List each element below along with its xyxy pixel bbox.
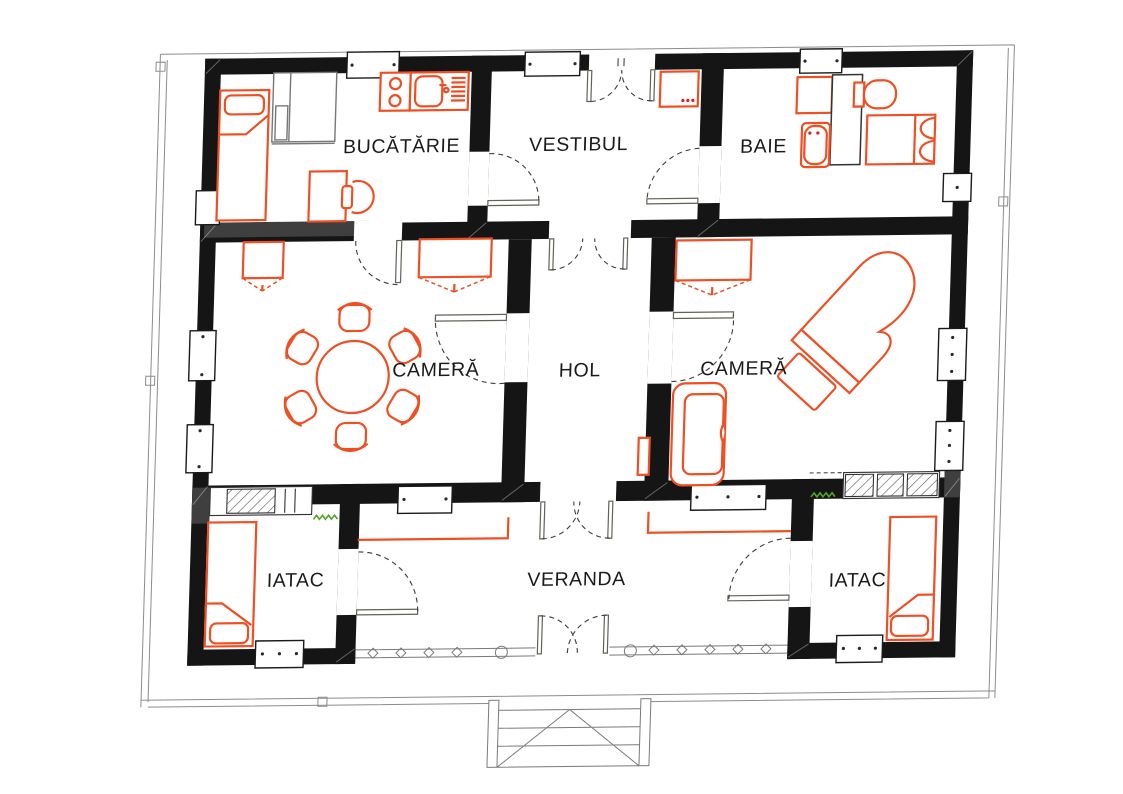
window	[525, 52, 581, 77]
window	[691, 484, 767, 510]
bathtub	[801, 123, 830, 167]
kitchen-sink	[410, 72, 469, 111]
toilet	[854, 80, 897, 108]
room-label-bucatarie: BUCĂTĂRIE	[343, 134, 461, 158]
room-label-camera-right: CAMERĂ	[700, 356, 788, 380]
window	[186, 425, 213, 473]
window	[800, 49, 843, 73]
grand-piano	[767, 240, 942, 420]
window	[836, 635, 883, 663]
sofa	[670, 383, 726, 486]
bathroom-fixtures	[795, 74, 937, 168]
room-label-iatac-right: IATAC	[828, 569, 886, 592]
kitchen-bed	[216, 90, 269, 221]
room-label-camera-left: CAMERĂ	[392, 358, 480, 382]
room-label-iatac-left: IATAC	[267, 569, 325, 592]
washing-machine	[660, 71, 699, 106]
window	[943, 173, 972, 201]
window	[937, 328, 967, 380]
room-label-vestibul: VESTIBUL	[529, 133, 629, 156]
room-label-hol: HOL	[559, 359, 602, 381]
window	[255, 640, 304, 668]
window	[189, 331, 217, 381]
wide-wardrobe	[418, 239, 492, 293]
shower-tray	[796, 77, 832, 113]
round-table	[316, 341, 390, 414]
wardrobe-cabinet	[272, 72, 337, 144]
desk-and-chair	[308, 171, 374, 222]
side-table	[638, 438, 650, 475]
window	[398, 486, 453, 514]
bed-iatac-left	[205, 522, 257, 647]
window	[935, 421, 964, 470]
veranda-benches	[358, 510, 792, 540]
veranda-railing	[355, 643, 787, 660]
room-label-veranda: VERANDA	[527, 568, 626, 591]
small-wardrobe	[242, 242, 283, 291]
bed-iatac-right	[887, 517, 937, 641]
cooktop	[380, 72, 411, 110]
wardrobe-right	[675, 240, 752, 296]
floor-plan: BUCĂTĂRIE VESTIBUL BAIE CAMERĂ HOL CAMER…	[0, 0, 1123, 794]
entrance-steps	[487, 697, 651, 769]
floorplan-canvas: BUCĂTĂRIE VESTIBUL BAIE CAMERĂ HOL CAMER…	[0, 0, 1123, 794]
bench-bed	[866, 115, 935, 165]
room-label-baie: BAIE	[740, 135, 787, 158]
